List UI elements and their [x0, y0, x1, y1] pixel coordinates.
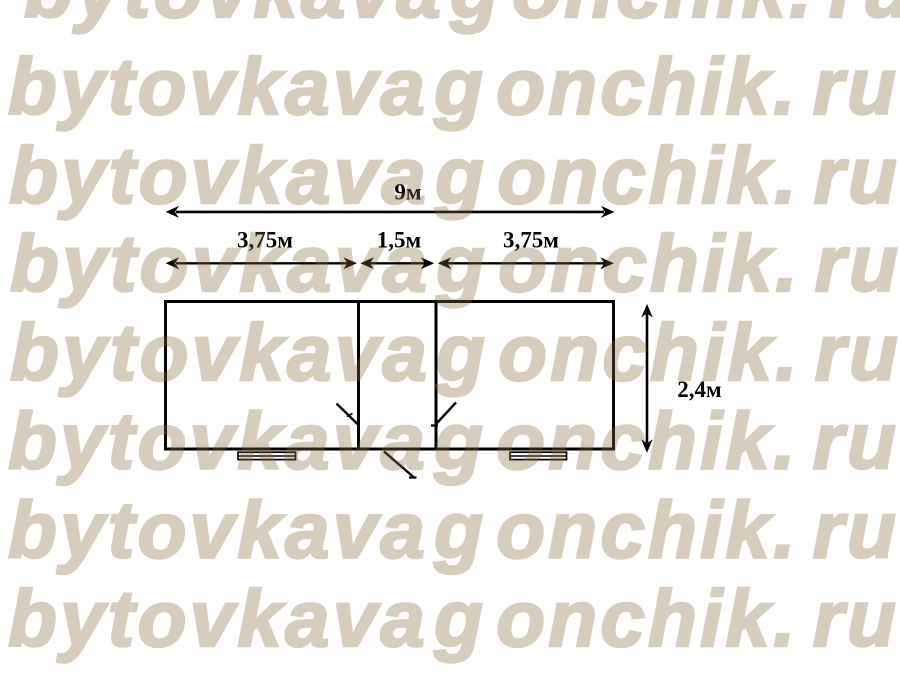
svg-text:bytovkavagonchik.ru: bytovkavagonchik.ru [8, 42, 899, 131]
svg-text:bytovkavagonchik.ru: bytovkavagonchik.ru [10, 308, 900, 397]
svg-text:bytovkavagonchik.ru: bytovkavagonchik.ru [24, 0, 900, 34]
svg-text:bytovkavagonchik.ru: bytovkavagonchik.ru [9, 131, 900, 220]
svg-text:bytovkavagonchik.ru: bytovkavagonchik.ru [8, 397, 899, 486]
svg-text:bytovkavagonchik.ru: bytovkavagonchik.ru [8, 486, 899, 575]
svg-text:bytovkavagonchik.ru: bytovkavagonchik.ru [8, 574, 899, 663]
svg-text:bytovkavagonchik.ru: bytovkavagonchik.ru [10, 219, 900, 308]
